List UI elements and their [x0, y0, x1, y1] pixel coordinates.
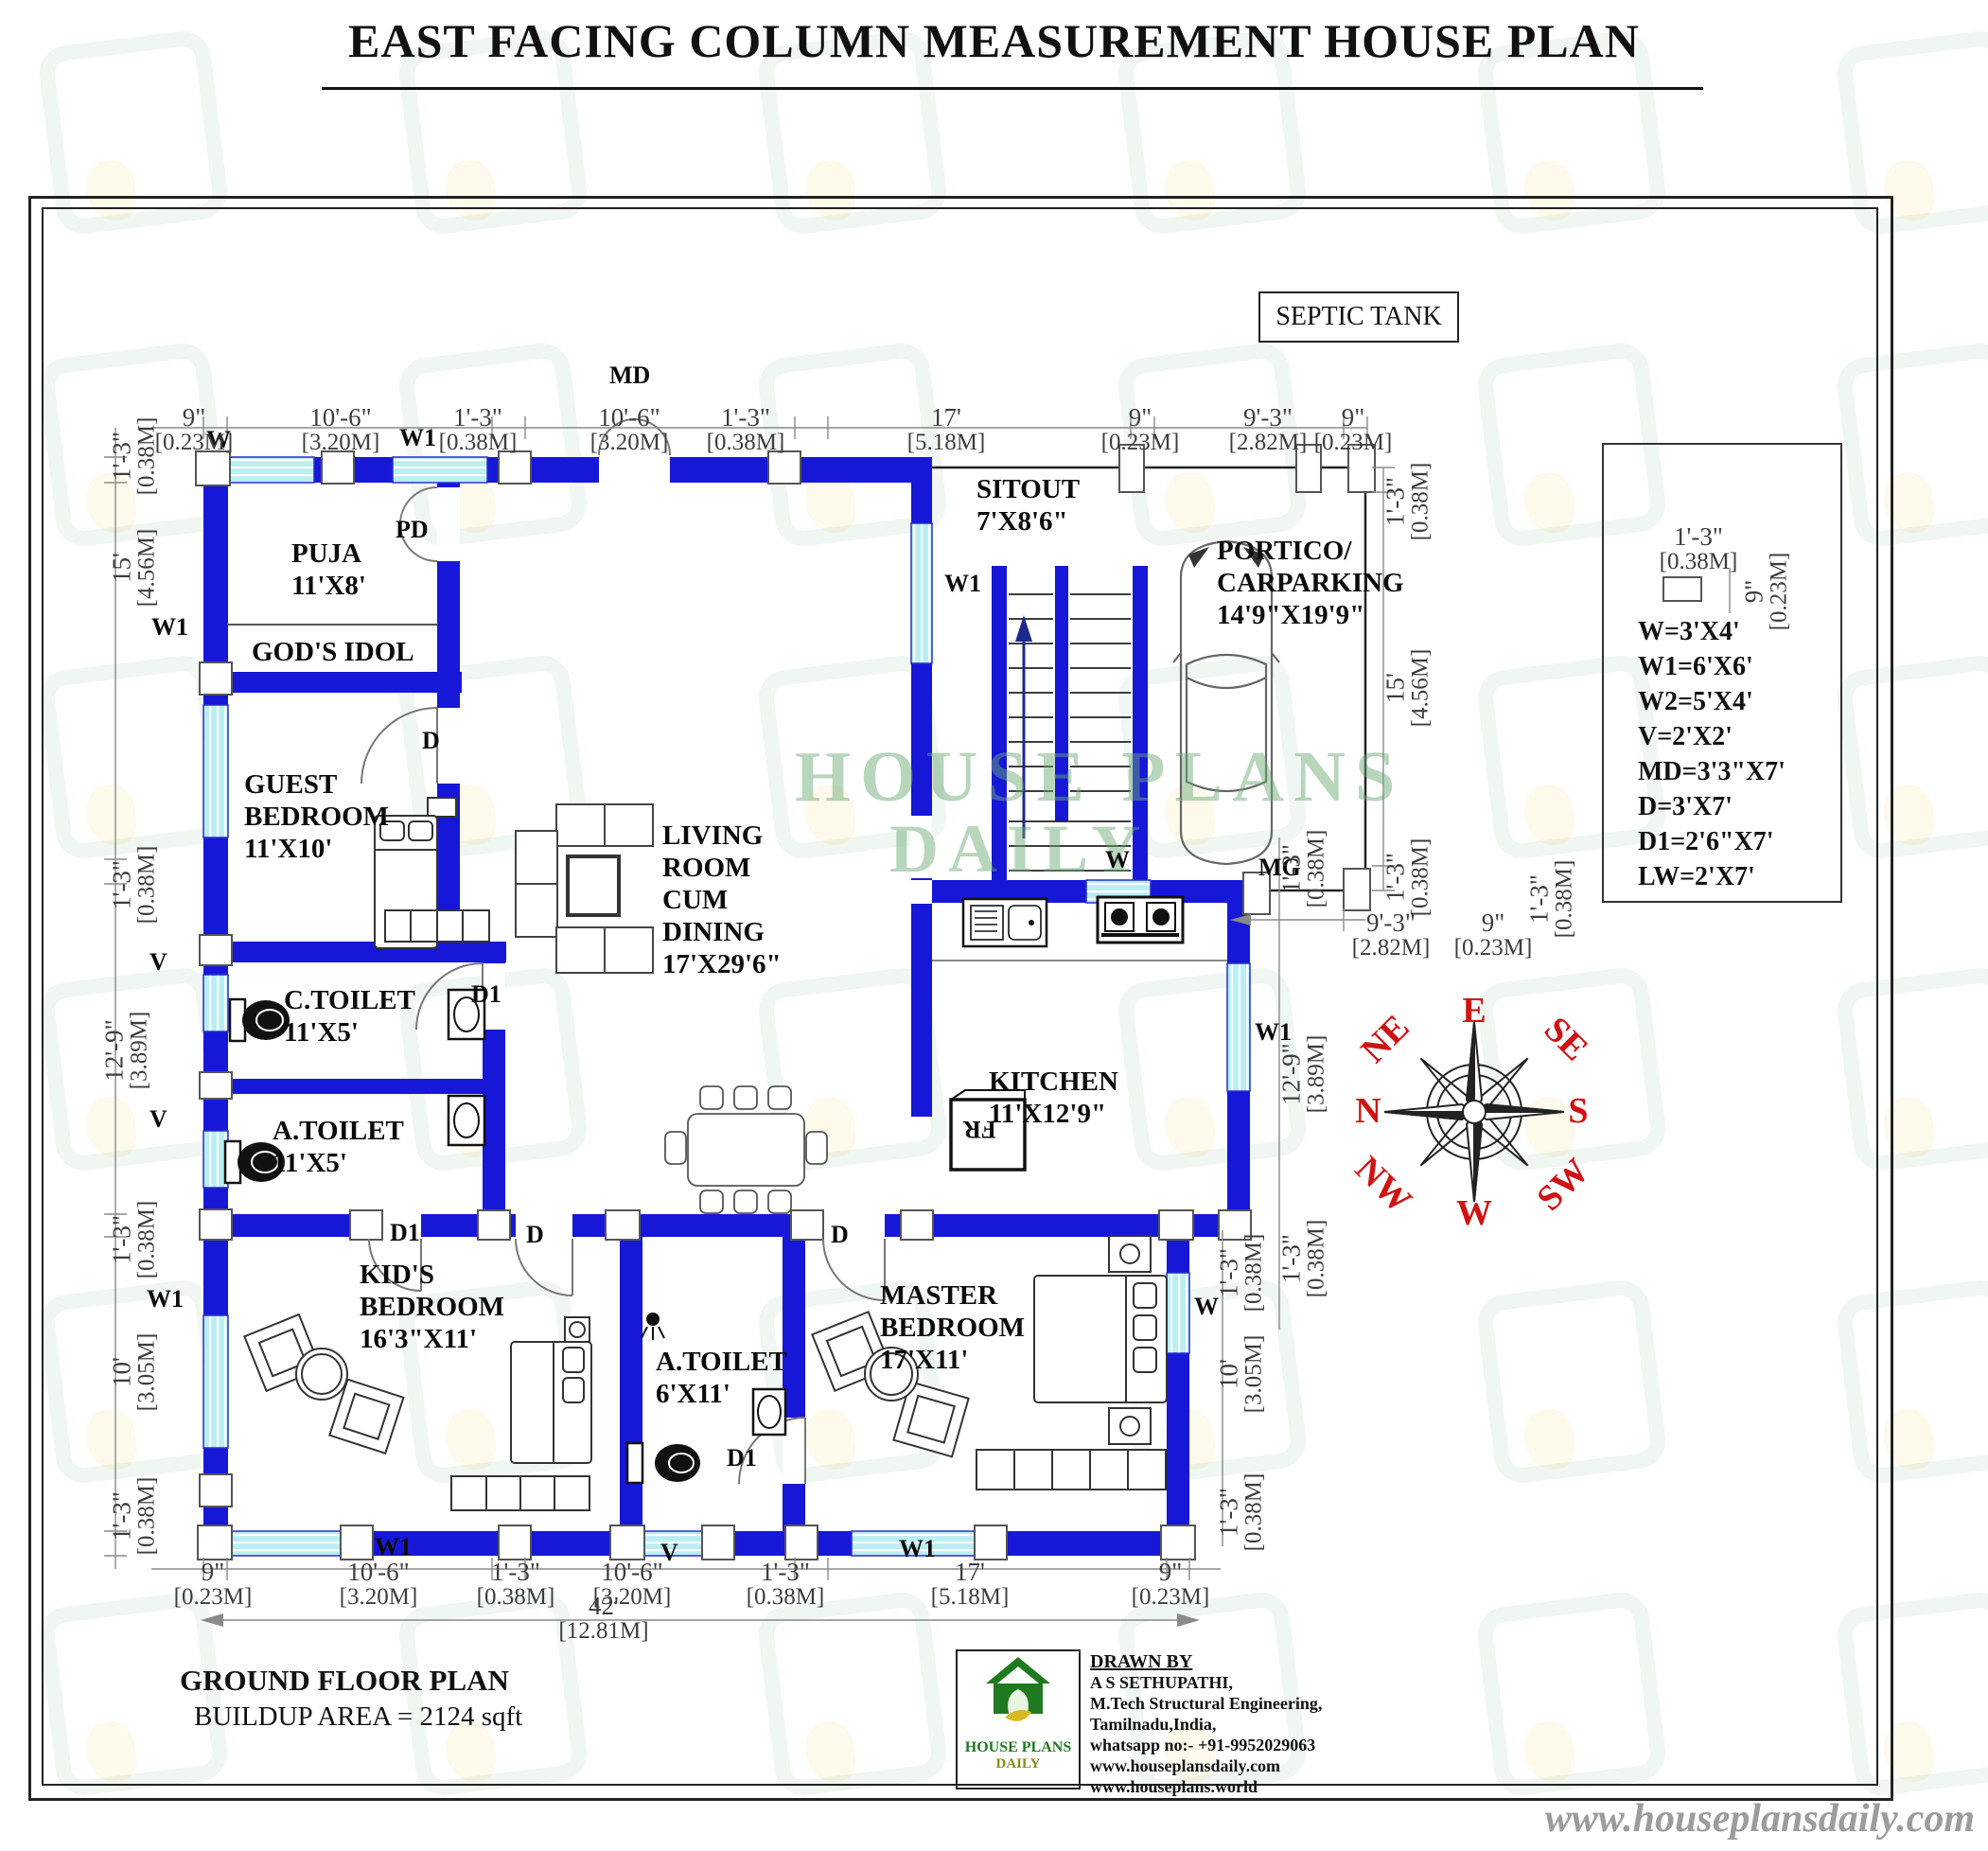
legend-entry-v: V=2'X2'	[1638, 722, 1733, 752]
dim-left-5: 10'[3.05M]	[110, 1333, 160, 1412]
dim-top-1: 10'-6"[3.20M]	[302, 405, 380, 455]
room-master-bedroom: MASTERBEDROOM17'X11'	[880, 1279, 1025, 1376]
logo-text-line1: HOUSE PLANS	[958, 1739, 1079, 1756]
dim-top-6: 9"[0.23M]	[1101, 405, 1180, 455]
room-gods-idol: GOD'S IDOL	[252, 636, 414, 668]
plan-name: GROUND FLOOR PLAN	[180, 1664, 509, 1698]
dim-top-5: 17'[5.18M]	[907, 405, 986, 455]
marker-v-left-ctoilet: V	[150, 948, 167, 977]
compass-south: S	[1568, 1090, 1588, 1132]
dim-top-7: 9'-3"[2.82M]	[1229, 405, 1308, 455]
dim-rmaster-0: 1'-3"[0.38M]	[1217, 1234, 1267, 1313]
dim-left-0: 1'-3"[0.38M]	[110, 417, 160, 496]
room-kids-bedroom: KID'SBEDROOM16'3"X11'	[360, 1259, 504, 1355]
drawn-by-site1: www.houseplansdaily.com	[1090, 1755, 1322, 1776]
marker-w-kitchen: W	[1105, 846, 1130, 874]
dining-table-icon	[665, 1086, 827, 1213]
legend-dim-v: 9"[0.23M]	[1742, 553, 1792, 631]
marker-d1-atoilet2: D1	[727, 1444, 757, 1472]
website-watermark: www.houseplansdaily.com	[1545, 1796, 1975, 1842]
marker-d1-atoilet: D1	[390, 1219, 420, 1247]
drawn-by-location: Tamilnadu,India,	[1090, 1714, 1322, 1735]
dim-top-8: 9"[0.23M]	[1314, 405, 1393, 455]
marker-d-guest: D	[422, 727, 440, 755]
legend-entry-d1: D1=2'6"X7'	[1638, 827, 1774, 857]
logo-text-line2: DAILY	[958, 1756, 1079, 1772]
dim-portico-width-0: 9'-3"[2.82M]	[1352, 910, 1431, 961]
dim-left-2: 1'-3"[0.38M]	[110, 846, 160, 925]
dim-rkitchen-2: 1'-3"[0.38M]	[1279, 1220, 1329, 1298]
dim-left-1: 15'[4.56M]	[110, 529, 160, 608]
marker-md: MD	[609, 361, 650, 390]
dim-top-4: 1'-3"[0.38M]	[707, 405, 785, 455]
drawn-by-degree: M.Tech Structural Engineering,	[1090, 1693, 1322, 1714]
legend-entry-lw: LW=2'X7'	[1638, 862, 1755, 892]
dim-overall: 42'[12.81M]	[558, 1594, 648, 1644]
dim-rkitchen-1: 12'-9"[3.89M]	[1279, 1035, 1329, 1114]
logo-box: HOUSE PLANS DAILY	[956, 1649, 1081, 1789]
marker-w1-left-guest: W1	[151, 613, 188, 642]
dim-rmaster-1: 10'[3.05M]	[1217, 1335, 1267, 1414]
legend-entry-w1: W1=6'X6'	[1638, 652, 1753, 682]
drawn-by-name: A S SETHUPATHI,	[1090, 1672, 1322, 1693]
legend-entry-w2: W2=5'X4'	[1638, 687, 1753, 717]
marker-w1-left-kids: W1	[147, 1285, 184, 1313]
legend-dim-h: 1'-3"[0.38M]	[1660, 524, 1738, 574]
guest-bed-icon	[375, 798, 489, 948]
dim-bottom-1: 10'-6"[3.20M]	[340, 1560, 418, 1610]
page-title: EAST FACING COLUMN MEASUREMENT HOUSE PLA…	[0, 13, 1988, 68]
marker-w1-sitout: W1	[944, 570, 981, 598]
drawn-by-site2: www.houseplans.world	[1090, 1776, 1322, 1797]
marker-d1-ctoilet: D1	[471, 980, 501, 1009]
sofa-set-icon	[516, 804, 653, 973]
marker-pd: PD	[396, 516, 429, 544]
dim-top-3: 10'-6"[3.20M]	[590, 405, 669, 455]
marker-fr-fridge: FR	[963, 1115, 996, 1143]
dim-rkitchen-0: 1'-3"[0.38M]	[1279, 830, 1329, 908]
dim-left-6: 1'-3"[0.38M]	[110, 1477, 160, 1556]
dim-top-0: 9"[0.23M]	[155, 405, 234, 455]
dim-left-4: 1'-3"[0.38M]	[110, 1201, 160, 1279]
marker-d-kids: D	[526, 1221, 544, 1249]
compass-west: W	[1456, 1192, 1492, 1234]
marker-v-left-atoilet: V	[150, 1105, 167, 1134]
dim-rportico-0: 1'-3"[0.38M]	[1383, 463, 1434, 541]
legend-entry-d: D=3'X7'	[1638, 792, 1733, 822]
drawn-by-phone: whatsapp no:- +91-9952029063	[1090, 1735, 1322, 1755]
drawn-by-block: DRAWN BY A S SETHUPATHI, M.Tech Structur…	[1090, 1651, 1322, 1797]
septic-tank-label: SEPTIC TANK	[1258, 291, 1459, 343]
dim-bottom-2: 1'-3"[0.38M]	[477, 1560, 555, 1610]
dim-bottom-0: 9"[0.23M]	[174, 1560, 253, 1610]
room-c-toilet: C.TOILET11'X5'	[284, 984, 415, 1049]
buildup-area: BUILDUP AREA = 2124 sqft	[194, 1701, 522, 1733]
house-logo-icon	[959, 1651, 1077, 1733]
dim-right-extra: 1'-3"[0.38M]	[1527, 860, 1577, 939]
drawn-by-title: DRAWN BY	[1090, 1651, 1322, 1672]
compass-north: N	[1355, 1090, 1381, 1132]
marker-d-master: D	[831, 1221, 849, 1249]
staircase-icon	[1009, 594, 1131, 871]
dim-rportico-2: 1'-3"[0.38M]	[1383, 838, 1434, 917]
room-a-toilet2: A.TOILET6'X11'	[656, 1346, 787, 1410]
dim-rportico-1: 15'[4.56M]	[1383, 649, 1434, 728]
dim-top-2: 1'-3"[0.38M]	[439, 405, 518, 455]
legend-entry-md: MD=3'3"X7'	[1638, 757, 1786, 787]
room-portico: PORTICO/CARPARKING14'9"X19'9"	[1217, 535, 1404, 631]
dim-rmaster-2: 1'-3"[0.38M]	[1217, 1473, 1267, 1552]
dim-portico-width-1: 9"[0.23M]	[1454, 910, 1533, 961]
dim-bottom-5: 17'[5.18M]	[931, 1560, 1010, 1610]
floor-plan-page: EAST FACING COLUMN MEASUREMENT HOUSE PLA…	[0, 0, 1988, 1851]
room-sitout: SITOUT7'X8'6"	[976, 473, 1080, 538]
legend-entry-w: W=3'X4'	[1638, 617, 1740, 647]
room-living: LIVINGROOMCUMDINING17'X29'6"	[662, 820, 782, 980]
compass-east: E	[1462, 990, 1486, 1031]
room-a-toilet: A.TOILET11'X5'	[273, 1115, 404, 1179]
room-guest-bedroom: GUESTBEDROOM11'X10'	[244, 768, 389, 865]
dim-left-3: 12'-9"[3.89M]	[102, 1012, 152, 1090]
marker-w1-top: W1	[399, 424, 436, 452]
dim-bottom-6: 9"[0.23M]	[1132, 1560, 1210, 1610]
room-kitchen: KITCHEN11'X12'9"	[989, 1066, 1118, 1130]
title-underline	[322, 87, 1703, 90]
room-puja: PUJA11'X8'	[291, 538, 366, 602]
dim-bottom-4: 1'-3"[0.38M]	[747, 1560, 825, 1610]
legend-box: 1'-3"[0.38M] 9"[0.23M] W=3'X4' W1=6'X6' …	[1602, 443, 1842, 903]
